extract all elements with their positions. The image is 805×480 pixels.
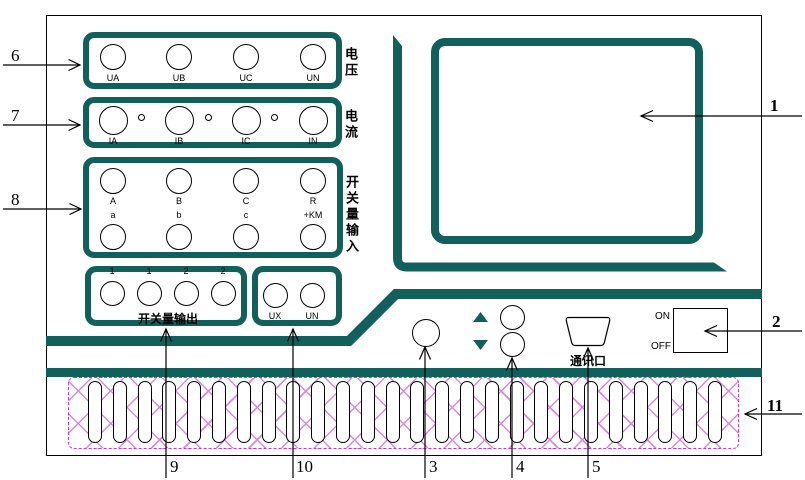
terminal-uc[interactable] [233,44,259,70]
vent-slot [138,381,152,443]
terminal-ux[interactable] [263,283,288,308]
comm-port-label: 通讯口 [568,352,608,369]
terminal-label: UB [157,73,201,83]
terminal-label: IC [224,136,268,146]
terminal-label: IN [291,136,335,146]
callout-number-5: 5 [592,457,601,476]
terminal-ia[interactable] [99,106,128,135]
callout-number-10: 10 [296,457,313,476]
power-switch[interactable] [673,308,728,353]
vent-slot [609,381,623,443]
terminal-label: 2 [211,266,235,276]
terminal-label: UA [91,73,135,83]
front-panel-diagram: UA UB UC UN 电压 IA IB IC IN 电流 A B C R a … [0,0,805,480]
current-group-label: 电流 [343,109,358,141]
vent-slot [708,381,722,443]
vent-slot [460,381,474,443]
power-on-label: ON [640,311,670,322]
power-off-label: OFF [640,341,671,352]
terminal-un-aux[interactable] [300,283,325,308]
terminal-ic[interactable] [232,106,261,135]
small-hole [271,114,278,121]
vent-slot [485,381,499,443]
terminal-label: IA [91,136,135,146]
terminal-label: A [91,196,135,206]
vent-slot [534,381,548,443]
voltage-group-label: 电压 [343,47,358,79]
vent-slot [113,381,127,443]
callout-number-3: 3 [429,457,438,476]
callout-number-9: 9 [170,457,179,476]
output-terminal-2a[interactable] [174,281,199,306]
terminal-ub[interactable] [166,44,192,70]
callout-number-11: 11 [767,396,783,415]
up-button[interactable] [500,305,525,330]
terminal-un[interactable] [300,44,326,70]
callout-number-7: 7 [11,106,20,125]
vent-slot [510,381,524,443]
callout-number-2: 2 [772,312,781,331]
terminal-label: +KM [291,210,335,220]
terminal-label: IB [157,136,201,146]
terminal-label: 2 [174,266,198,276]
vent-slot [634,381,648,443]
vent-slot [559,381,573,443]
vent-slot [584,381,598,443]
vent-slot [262,381,276,443]
vent-slot [286,381,300,443]
callout-number-8: 8 [11,190,20,209]
terminal-label: UC [224,73,268,83]
switch-output-group-label: 开关量输出 [126,310,210,327]
terminal-ua[interactable] [100,44,126,70]
terminal-label: 1 [137,266,161,276]
function-button[interactable] [412,319,440,347]
terminal-in[interactable] [299,106,328,135]
switch-input-group-label: 开关量输入 [344,175,359,255]
callout-number-6: 6 [11,46,20,65]
terminal-km[interactable] [300,224,326,250]
terminal-label: 1 [100,266,124,276]
terminal-label: B [157,196,201,206]
vent-slot [311,381,325,443]
callout-number-1: 1 [770,96,779,115]
terminal-b-upper[interactable] [166,168,192,194]
vent-slot [361,381,375,443]
output-terminal-1b[interactable] [137,281,162,306]
terminal-label: a [91,210,135,220]
terminal-b-lower[interactable] [166,224,192,250]
vent-slot [658,381,672,443]
terminal-a-lower[interactable] [100,224,126,250]
output-terminal-1a[interactable] [100,281,125,306]
vent-slot [435,381,449,443]
terminal-label: R [291,196,335,206]
comm-port-connector[interactable] [566,318,610,346]
small-hole [138,114,145,121]
output-terminal-2b[interactable] [211,281,236,306]
vent-slot [683,381,697,443]
terminal-label: UN [291,73,335,83]
terminal-a-upper[interactable] [100,168,126,194]
vent-slot [336,381,350,443]
vent-grille [68,377,739,449]
terminal-c-upper[interactable] [233,168,259,194]
down-button[interactable] [500,332,525,357]
vent-slot [162,381,176,443]
vent-slot [386,381,400,443]
vent-slot [88,381,102,443]
terminal-ib[interactable] [165,106,194,135]
vent-slot [410,381,424,443]
terminal-label: UN [290,311,334,321]
vent-slot [212,381,226,443]
vent-slot [237,381,251,443]
vent-slot [187,381,201,443]
callout-number-4: 4 [516,457,525,476]
terminal-label: b [157,210,201,220]
terminal-label: C [224,196,268,206]
small-hole [205,114,212,121]
terminal-label: c [224,210,268,220]
terminal-c-lower[interactable] [233,224,259,250]
lcd-screen [431,38,703,244]
terminal-r[interactable] [300,168,326,194]
